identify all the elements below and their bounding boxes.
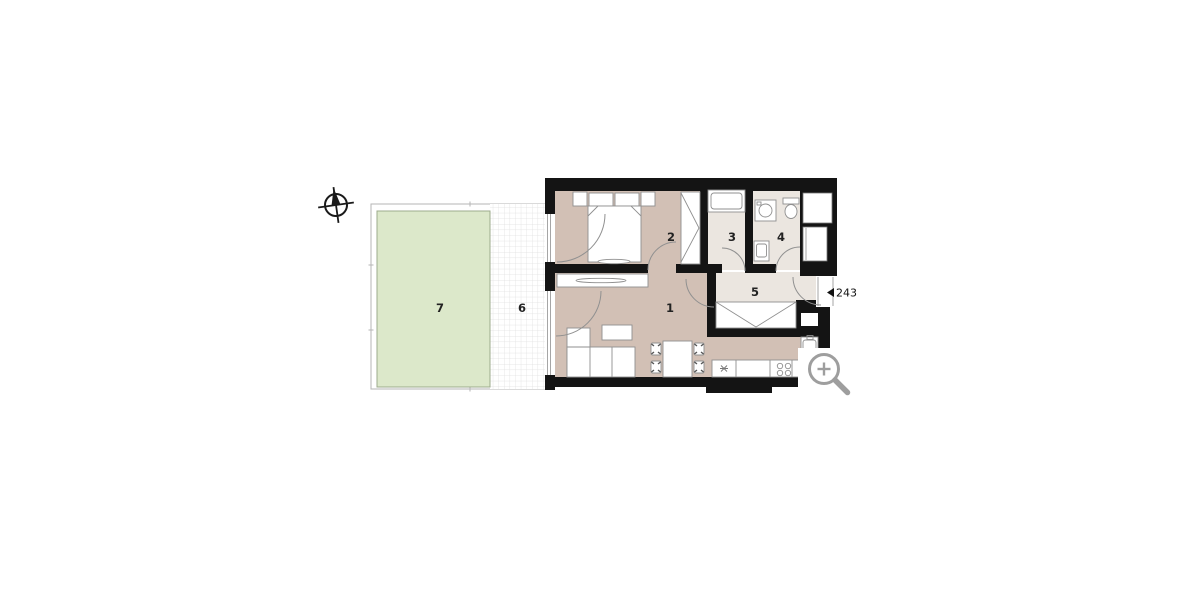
- dining-chair: [694, 343, 704, 355]
- compass-north-icon: [316, 185, 357, 226]
- dining-chair: [651, 343, 661, 355]
- toilet-bowl: [785, 205, 797, 219]
- room-label-5: 5: [751, 285, 759, 299]
- bedroom-furniture: [573, 192, 700, 264]
- room-label-4: 4: [777, 230, 785, 244]
- hall-wardrobe: [716, 302, 796, 328]
- floor-plan-drawing: 1 2 3 4 5 6 7 243: [0, 0, 1200, 600]
- shaft-niche-lower: [803, 227, 827, 261]
- room-label-7: 7: [436, 301, 444, 315]
- dining-table: [663, 341, 692, 377]
- bedroom-shelf: [598, 259, 630, 263]
- tv-unit: [576, 278, 626, 282]
- pillow-left: [589, 193, 613, 206]
- outdoor-area: [369, 202, 547, 392]
- room-label-2: 2: [667, 230, 675, 244]
- bedroom-wardrobe: [681, 192, 700, 264]
- pillow-right: [615, 193, 639, 206]
- garden-area: [377, 211, 490, 387]
- terrace-glazing: [545, 214, 555, 375]
- entrance-opening: [816, 276, 838, 307]
- hall-closet: [800, 312, 819, 327]
- room-label-3: 3: [728, 230, 736, 244]
- room-label-1: 1: [666, 301, 674, 315]
- nightstand-left: [573, 192, 587, 206]
- floor-plan-canvas: 1 2 3 4 5 6 7 243: [0, 0, 1200, 600]
- unit-number: 243: [836, 287, 857, 300]
- dining-chair: [694, 361, 704, 373]
- terrace-tile-grid: [490, 204, 546, 389]
- dining-chair: [651, 361, 661, 373]
- room-label-6: 6: [518, 301, 526, 315]
- sofa-seats: [567, 347, 635, 377]
- nightstand-right: [641, 192, 655, 206]
- coffee-table: [602, 325, 632, 340]
- washing-machine: [755, 200, 776, 221]
- double-bed: [588, 206, 641, 262]
- shaft-niche-upper: [803, 193, 832, 223]
- toilet-tank: [783, 198, 799, 204]
